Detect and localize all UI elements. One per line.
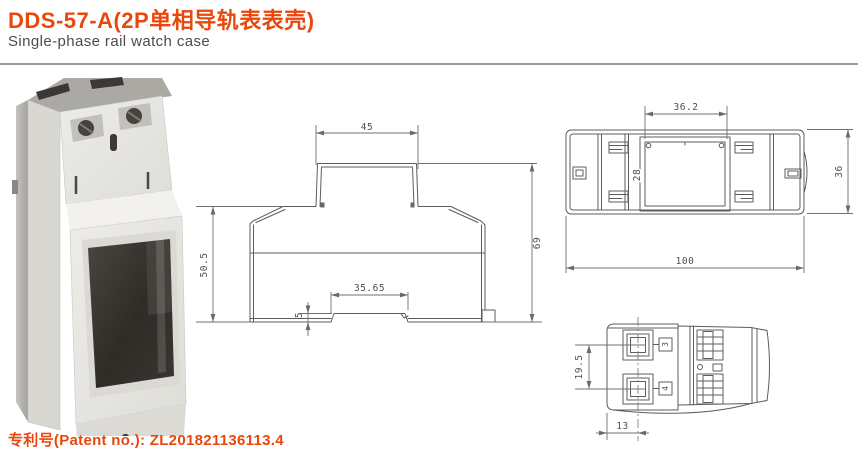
- patent-number: 专利号(Patent no.): ZL201821136113.4: [8, 429, 284, 450]
- dim-window-height: 28: [632, 169, 643, 181]
- dim-terminal-offset: 13: [616, 421, 628, 432]
- rail-strip: [28, 100, 60, 430]
- rail-case-photo: [12, 77, 186, 436]
- top-view-drawing: 36.2 28 36 100: [545, 85, 858, 285]
- header-divider: [0, 63, 858, 65]
- page-title: DDS-57-A(2P单相导轨表表壳): [8, 3, 315, 35]
- front-view-drawing: 45 50.5 35.65 5 69: [196, 85, 548, 355]
- top-housing-outline: [566, 130, 807, 214]
- datasheet-page: DDS-57-A(2P单相导轨表表壳) Single-phase rail wa…: [0, 0, 858, 457]
- product-photo: [6, 72, 190, 436]
- case-left-side: [16, 100, 28, 422]
- dim-depth: 36: [834, 165, 845, 177]
- end-view-drawing: 19.5 13 3 4: [555, 300, 858, 450]
- page-subtitle: Single-phase rail watch case: [8, 33, 210, 50]
- seal-slot: [110, 134, 117, 151]
- top-dimensions: [566, 106, 853, 273]
- front-dimensions: [196, 125, 542, 336]
- dim-recess-width: 35.65: [354, 283, 385, 294]
- dim-length: 100: [676, 256, 695, 267]
- terminal-label-3: 3: [661, 342, 670, 347]
- dim-recess-depth: 5: [294, 312, 305, 318]
- dim-window-width: 36.2: [674, 102, 699, 113]
- dim-terminal-pitch: 19.5: [574, 355, 585, 380]
- dim-body-height: 50.5: [199, 253, 210, 278]
- end-housing-outline: [607, 324, 770, 413]
- dim-tab-width: 45: [361, 122, 373, 133]
- front-housing-outline: [250, 164, 495, 323]
- rail-notch: [12, 180, 18, 194]
- terminal-label-4: 4: [661, 386, 670, 391]
- dim-total-height: 69: [532, 237, 543, 249]
